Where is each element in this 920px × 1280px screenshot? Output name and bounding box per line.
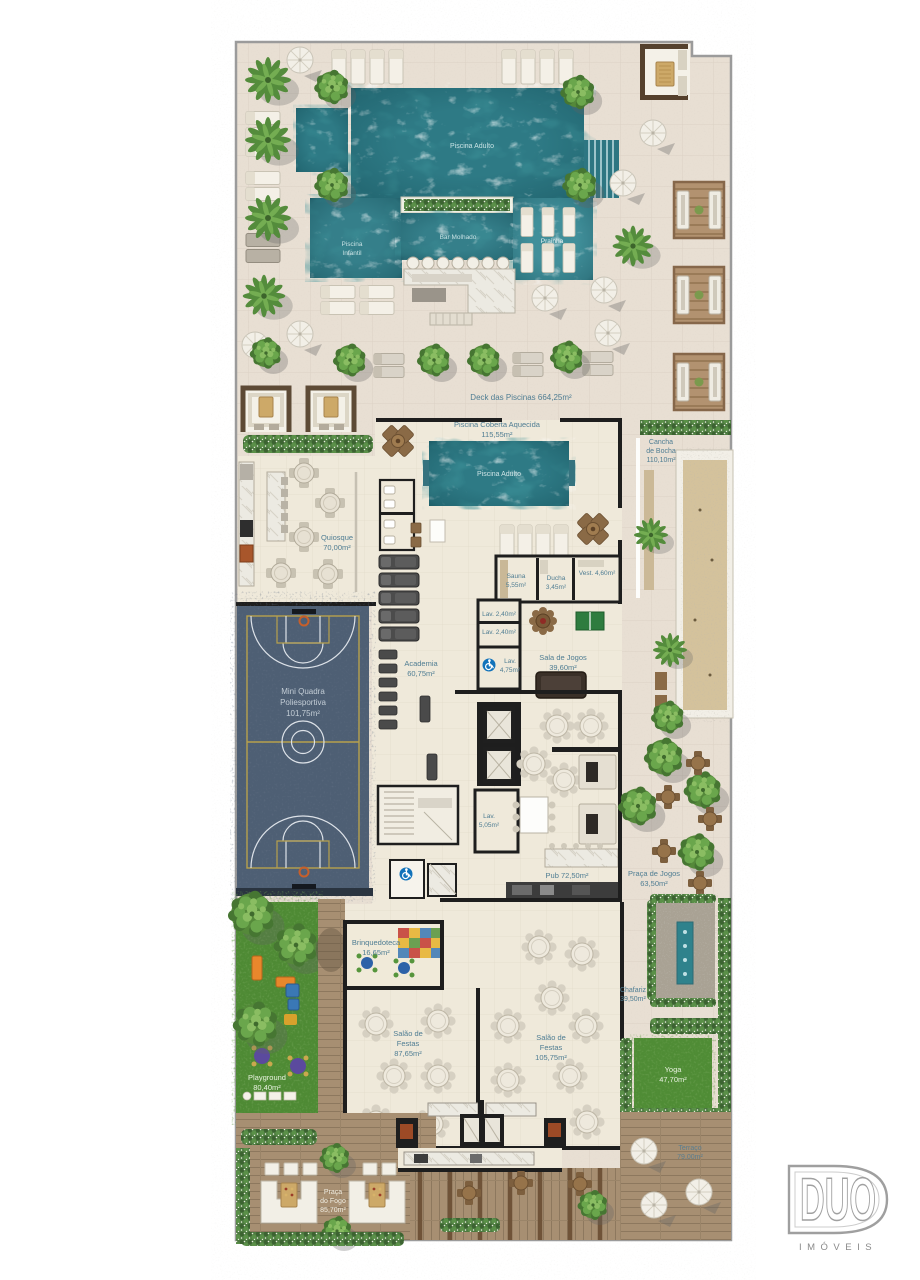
svg-text:105,75m²: 105,75m²: [535, 1053, 567, 1062]
svg-text:Lav.: Lav.: [504, 658, 516, 665]
svg-text:5,05m²: 5,05m²: [479, 822, 500, 829]
svg-text:Ducha: Ducha: [547, 575, 566, 582]
svg-text:110,10m²: 110,10m²: [646, 457, 676, 464]
svg-text:Piscina: Piscina: [342, 241, 363, 248]
svg-text:80,40m²: 80,40m²: [253, 1083, 281, 1092]
svg-text:85,70m²: 85,70m²: [320, 1207, 346, 1214]
svg-text:Festas: Festas: [540, 1043, 563, 1052]
svg-text:Festas: Festas: [397, 1039, 420, 1048]
svg-text:Yoga: Yoga: [665, 1065, 683, 1074]
svg-text:39,60m²: 39,60m²: [549, 663, 577, 672]
svg-text:Sauna: Sauna: [507, 573, 526, 580]
svg-text:47,70m²: 47,70m²: [659, 1075, 687, 1084]
svg-text:Terraço: Terraço: [678, 1145, 701, 1152]
svg-text:Playground: Playground: [248, 1073, 286, 1082]
svg-text:Lav.: Lav.: [483, 813, 495, 820]
svg-text:Infantil: Infantil: [342, 250, 362, 257]
svg-text:Praça: Praça: [324, 1189, 342, 1196]
svg-text:DUO: DUO: [800, 1166, 876, 1233]
svg-text:do Fogo: do Fogo: [320, 1198, 346, 1205]
svg-text:Brinquedoteca: Brinquedoteca: [352, 938, 401, 947]
svg-text:Sala de Jogos: Sala de Jogos: [539, 653, 587, 662]
svg-text:79,00m²: 79,00m²: [677, 1154, 703, 1161]
svg-text:60,75m²: 60,75m²: [407, 669, 435, 678]
svg-text:de Bocha: de Bocha: [646, 448, 676, 455]
svg-text:Poliesportiva: Poliesportiva: [280, 698, 326, 707]
svg-text:101,75m²: 101,75m²: [286, 709, 320, 718]
svg-text:Academia: Academia: [404, 659, 438, 668]
svg-text:Bar Molhado: Bar Molhado: [440, 234, 477, 241]
svg-text:Prainha: Prainha: [541, 238, 564, 245]
svg-text:Chafariz: Chafariz: [620, 987, 647, 994]
svg-text:Lav. 2,40m²: Lav. 2,40m²: [482, 629, 517, 636]
svg-text:Lav. 2,40m²: Lav. 2,40m²: [482, 611, 517, 618]
svg-text:39,50m²: 39,50m²: [620, 996, 646, 1003]
svg-text:Mini Quadra: Mini Quadra: [281, 687, 325, 696]
svg-text:5,55m²: 5,55m²: [506, 582, 527, 589]
svg-text:115,55m²: 115,55m²: [481, 430, 513, 439]
svg-text:3,45m²: 3,45m²: [546, 584, 567, 591]
svg-text:IMÓVEIS: IMÓVEIS: [799, 1242, 877, 1253]
svg-text:Cancha: Cancha: [649, 439, 673, 446]
svg-text:Pub 72,50m²: Pub 72,50m²: [546, 871, 589, 880]
svg-text:Quiosque: Quiosque: [321, 533, 353, 542]
svg-text:Deck das Piscinas 664,25m²: Deck das Piscinas 664,25m²: [470, 393, 572, 402]
svg-text:16,65m²: 16,65m²: [362, 948, 390, 957]
svg-text:Salão de: Salão de: [393, 1029, 423, 1038]
svg-text:70,00m²: 70,00m²: [323, 543, 351, 552]
svg-text:63,50m²: 63,50m²: [640, 879, 668, 888]
svg-text:Piscina Adulto: Piscina Adulto: [477, 471, 521, 478]
svg-text:Salão de: Salão de: [536, 1033, 566, 1042]
svg-text:Praça de Jogos: Praça de Jogos: [628, 869, 680, 878]
svg-text:Piscina Adulto: Piscina Adulto: [450, 143, 494, 150]
svg-text:Vest. 4,60m²: Vest. 4,60m²: [579, 570, 616, 577]
svg-text:4,75m²: 4,75m²: [500, 667, 521, 674]
svg-text:87,65m²: 87,65m²: [394, 1049, 422, 1058]
